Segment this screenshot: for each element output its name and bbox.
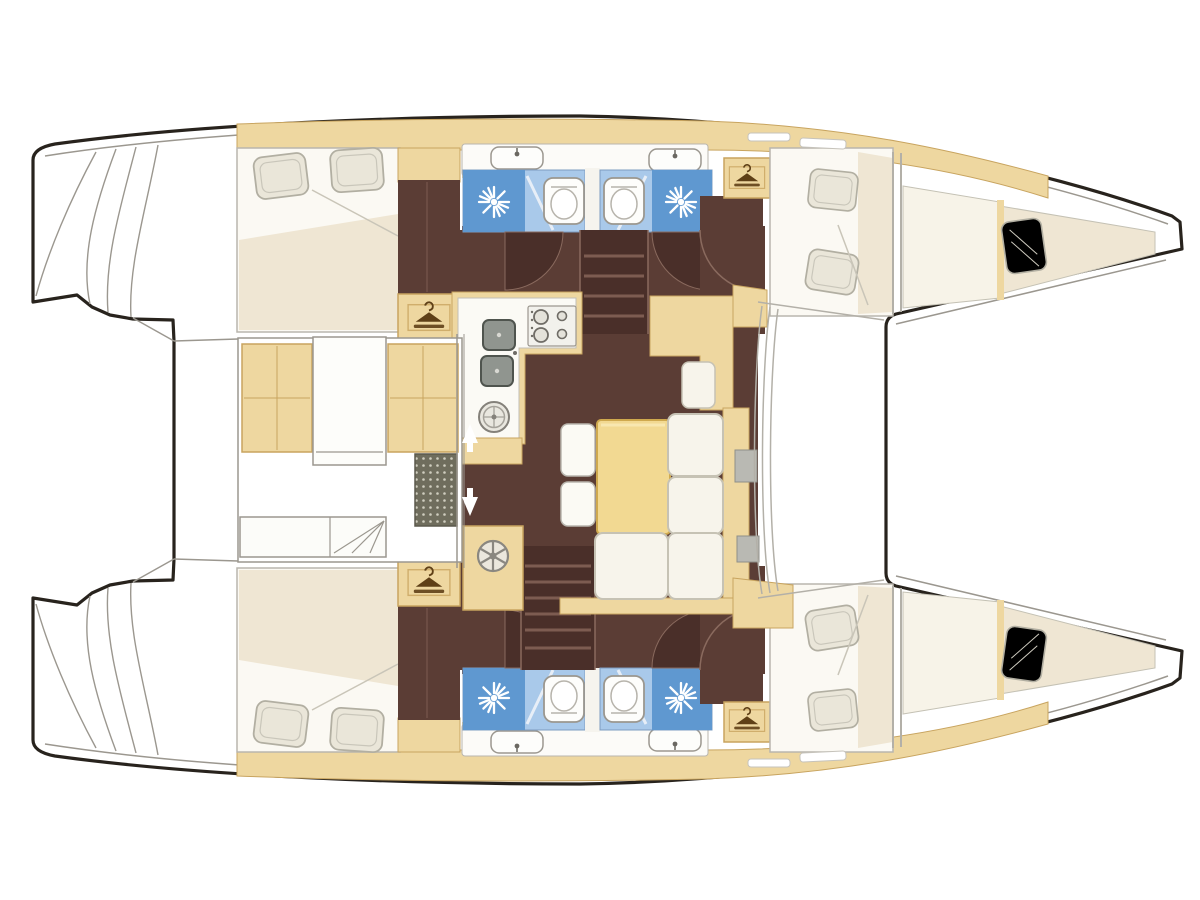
- square-sink-icon: [483, 320, 515, 350]
- nav-seat: [733, 578, 793, 628]
- stools: [561, 424, 595, 526]
- square-sink-icon: [481, 356, 513, 386]
- faucet-dot: [513, 351, 517, 355]
- cockpit-table: [313, 337, 386, 465]
- hatch-cabinet: [463, 526, 523, 610]
- grate-icon: [415, 454, 457, 526]
- dinette-table: [597, 420, 670, 534]
- spoked-wheel-icon: [478, 541, 508, 571]
- sofa-corner-cushion: [682, 362, 715, 408]
- aft-bench: [240, 517, 386, 557]
- catamaran-floor-plan: [0, 0, 1200, 900]
- companionway-stairs-port: [580, 230, 648, 334]
- sofa-base-bottom: [560, 598, 749, 614]
- round-sink-icon: [479, 402, 509, 432]
- cockpit: [238, 334, 478, 568]
- floor-plan-page: [0, 0, 1200, 900]
- stove-icon: [528, 306, 576, 346]
